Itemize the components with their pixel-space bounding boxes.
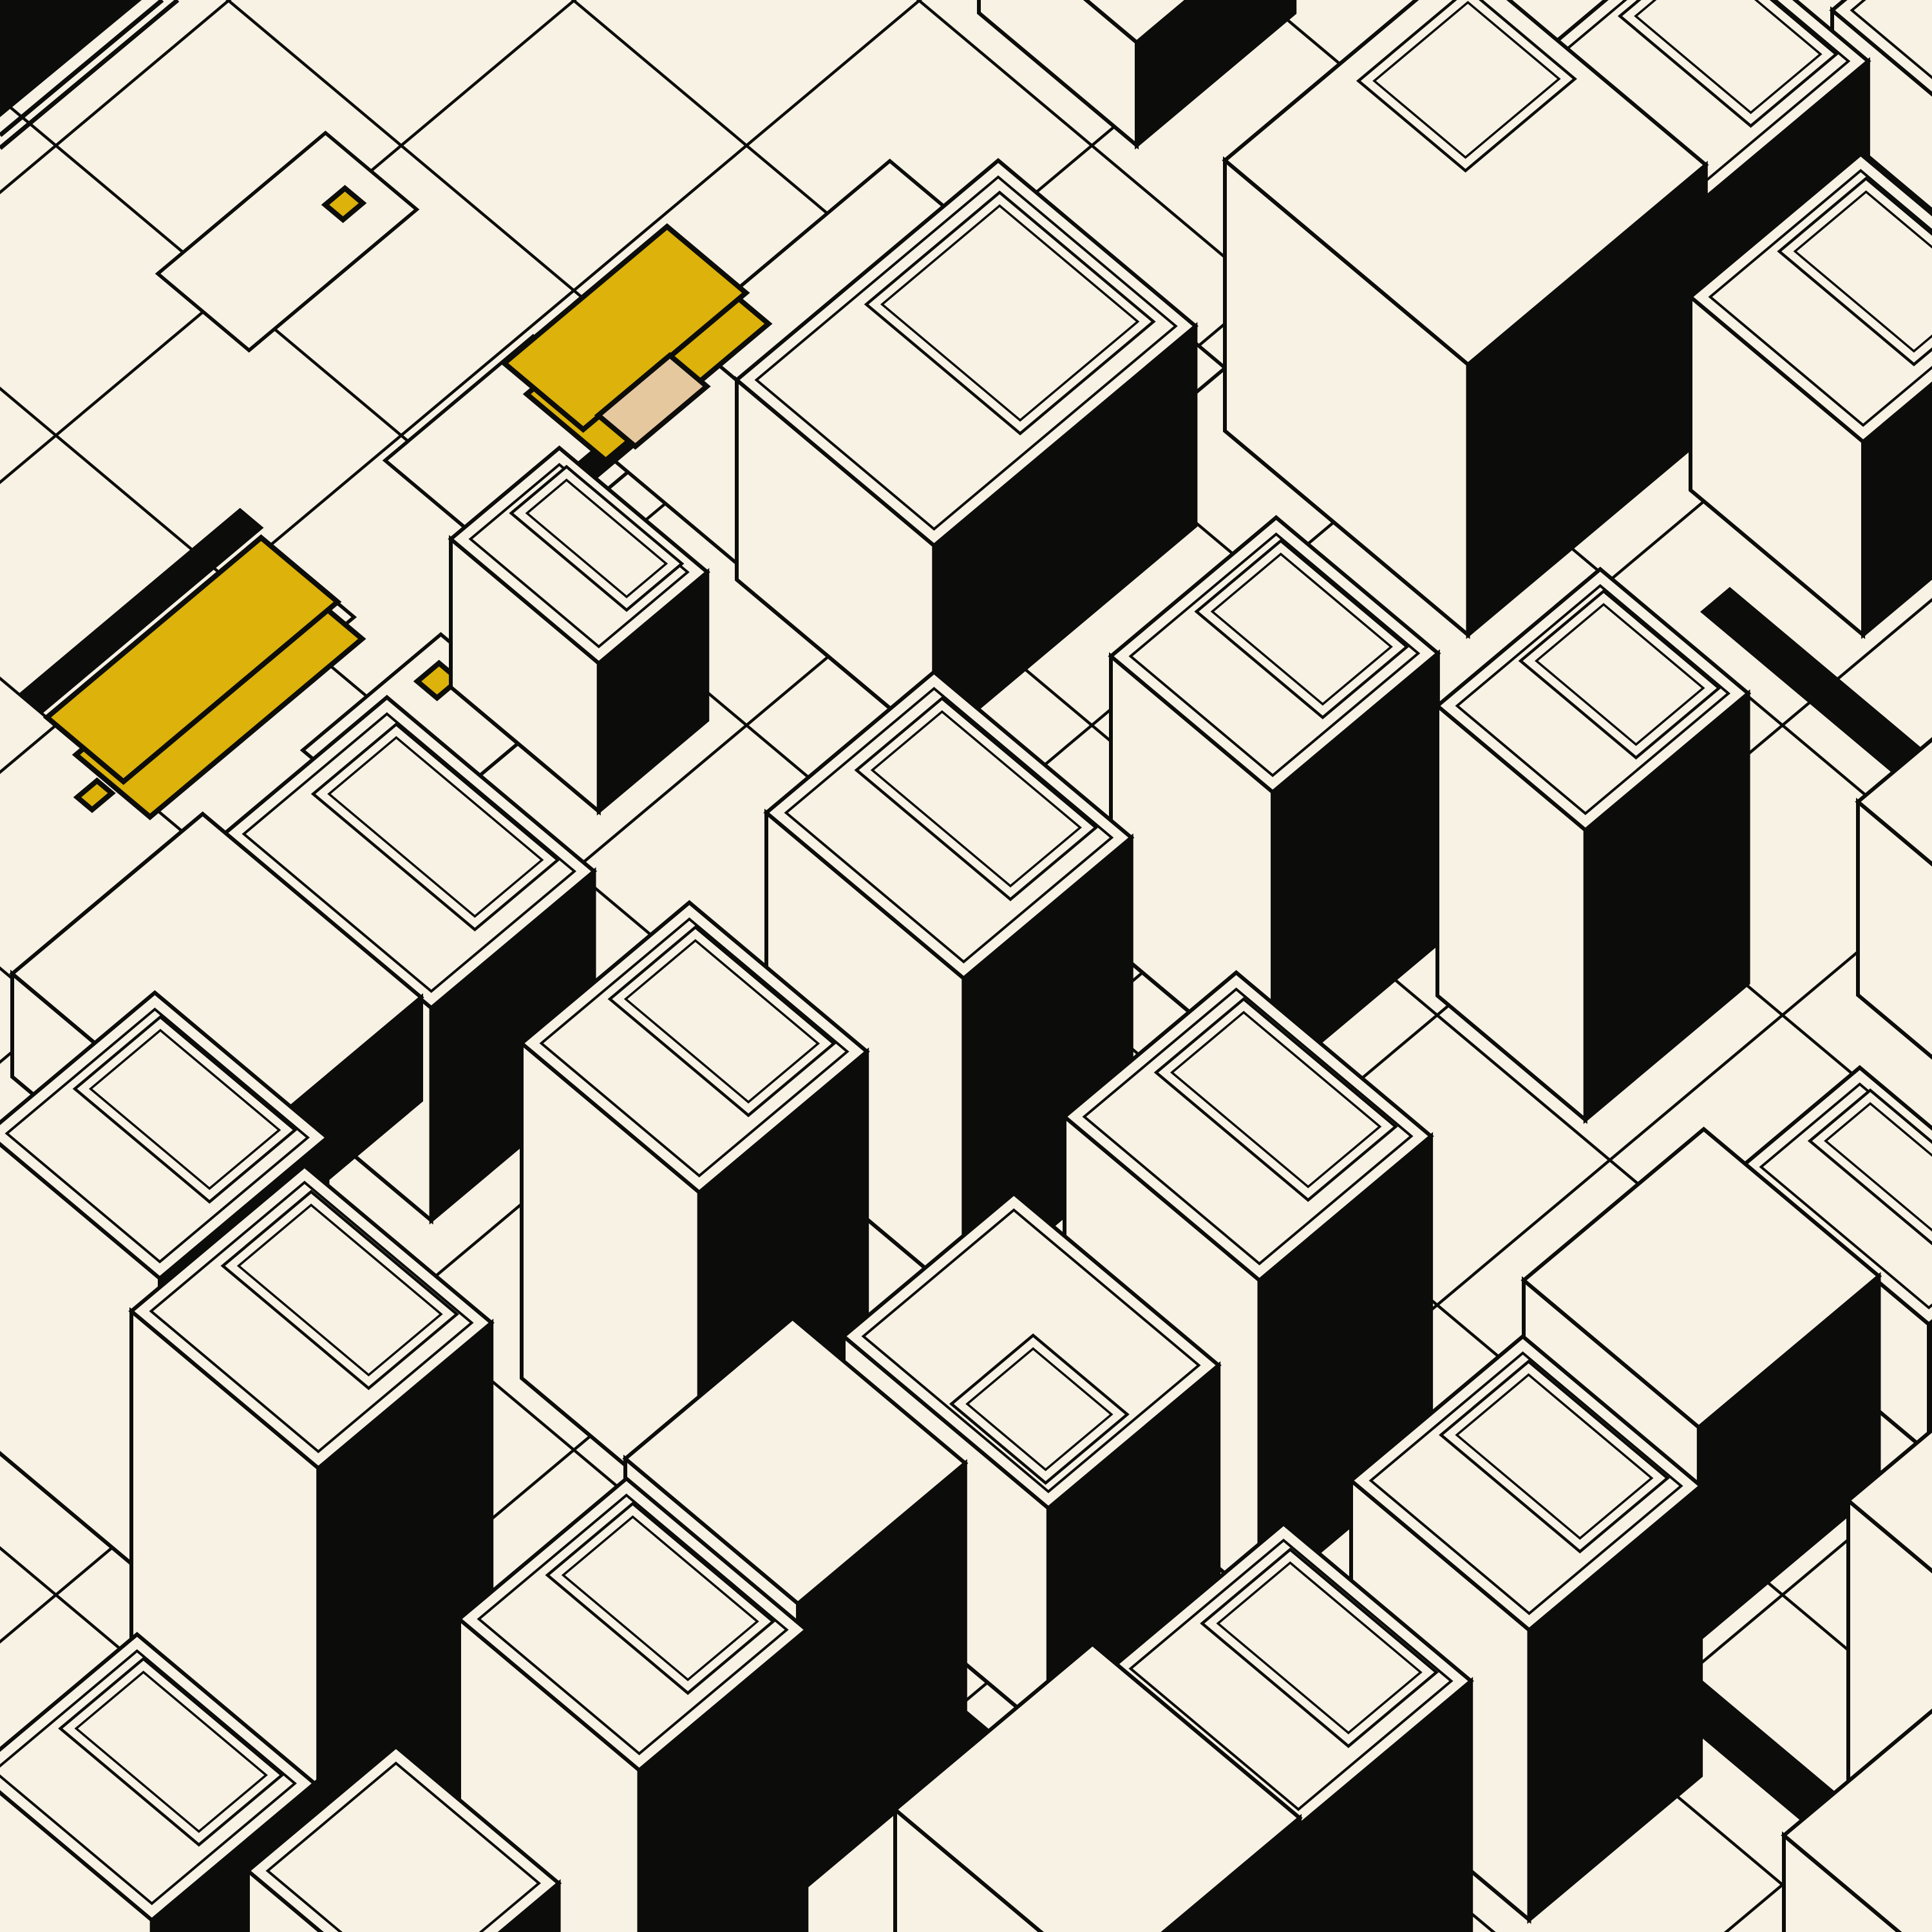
artwork-canvas bbox=[0, 0, 1932, 1932]
isometric-scene-svg bbox=[0, 0, 1932, 1932]
